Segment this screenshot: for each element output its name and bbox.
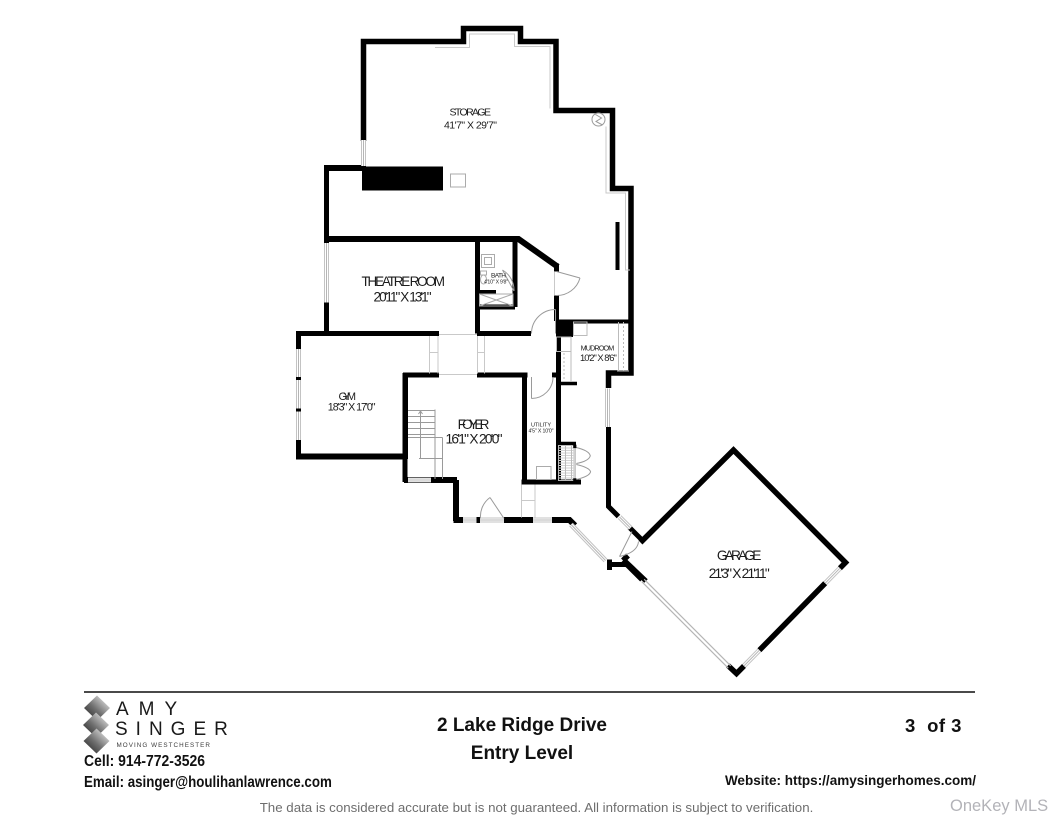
svg-text:GARAGE: GARAGE <box>717 548 762 563</box>
svg-text:4'5" X 10'0": 4'5" X 10'0" <box>529 428 554 434</box>
svg-text:10'2" X 8'6": 10'2" X 8'6" <box>580 352 617 363</box>
svg-text:18'3" X 17'0": 18'3" X 17'0" <box>328 402 376 414</box>
svg-text:20'11" X 13'1": 20'11" X 13'1" <box>374 290 432 305</box>
svg-text:THEATRE ROOM: THEATRE ROOM <box>362 274 446 289</box>
svg-text:BATH: BATH <box>491 273 506 280</box>
svg-text:FOYER: FOYER <box>458 417 490 432</box>
svg-text:21'3" X 21'11": 21'3" X 21'11" <box>709 566 770 581</box>
svg-text:4'10" X 9'8": 4'10" X 9'8" <box>484 280 508 286</box>
svg-text:41'7" X 29'7": 41'7" X 29'7" <box>444 120 497 132</box>
svg-text:16'1" X 20'0": 16'1" X 20'0" <box>446 432 503 447</box>
svg-text:STORAGE: STORAGE <box>450 107 492 119</box>
